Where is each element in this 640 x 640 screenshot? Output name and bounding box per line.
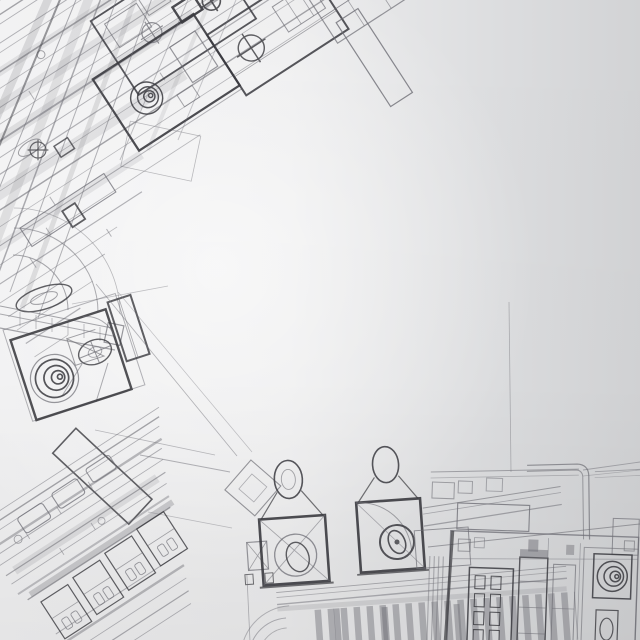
blueprint-canvas — [0, 0, 640, 640]
blueprint-backdrop — [0, 0, 640, 640]
